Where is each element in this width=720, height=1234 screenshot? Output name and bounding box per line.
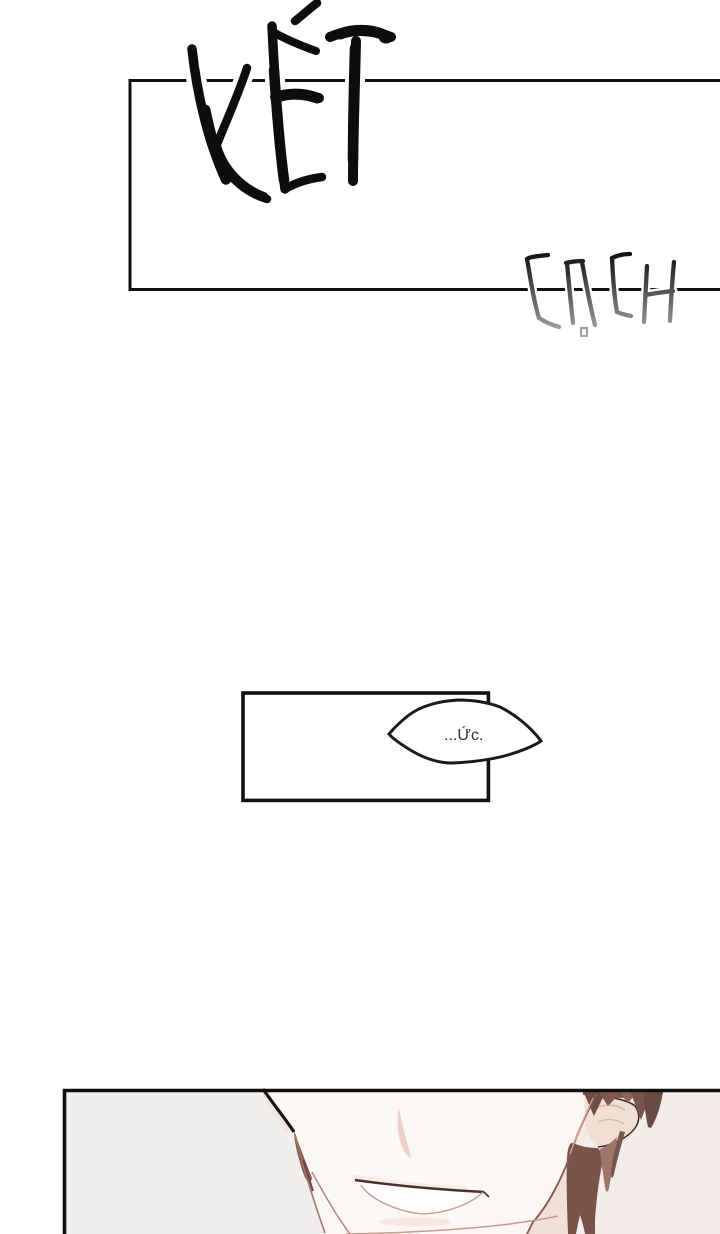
svg-text:...Ức.: ...Ức. — [444, 725, 483, 744]
